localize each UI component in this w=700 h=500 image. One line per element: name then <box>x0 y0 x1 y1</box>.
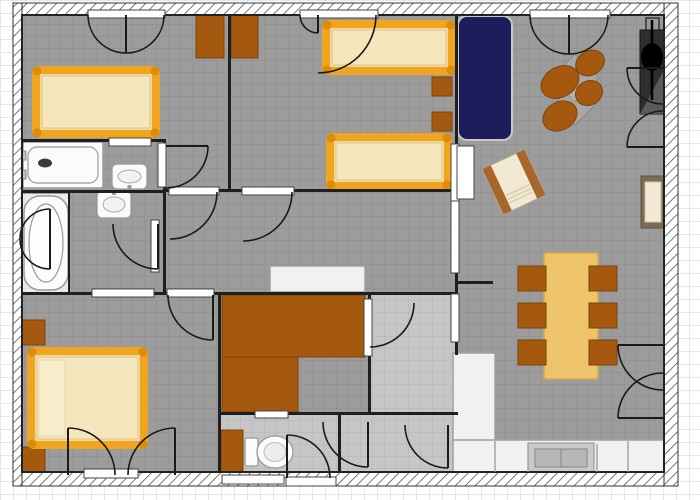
dining-chair-3 <box>518 340 546 365</box>
nightstand-4 <box>21 447 45 472</box>
wardrobe-bed1 <box>196 13 224 58</box>
threshold-bed3-hall <box>167 289 214 297</box>
wall-hall-bottom <box>22 292 458 295</box>
wall-wc-lobby <box>338 412 341 480</box>
bed-single-1-knob-3 <box>447 66 456 75</box>
bed-double-2-knob-2 <box>28 440 37 449</box>
wall-right <box>664 3 678 486</box>
bathtub-rect-drain <box>38 159 52 168</box>
bathtub-rect <box>23 142 103 188</box>
threshold-bath1-door <box>158 143 166 187</box>
wardrobe-bed2 <box>231 13 258 58</box>
bed-double-1-knob-3 <box>151 129 160 138</box>
threshold-bed2-hall <box>242 187 294 195</box>
sink-bath1-basin <box>118 170 141 183</box>
bed-single-1-knob-0 <box>323 21 332 30</box>
dining-chair-5 <box>589 303 617 328</box>
bed-double-1-knob-2 <box>33 129 42 138</box>
bed-single-1-mattress <box>332 30 446 65</box>
nightstand-1 <box>432 77 452 96</box>
bathtub-oval-basin <box>29 204 63 282</box>
hall-dresser <box>270 266 365 292</box>
wall-tub-niche <box>68 191 70 292</box>
threshold-utility-dining <box>451 294 459 342</box>
wall-bath1-bath2 <box>22 190 166 193</box>
bed-double-2-knob-1 <box>139 348 148 357</box>
kitchen-counter-tall <box>453 353 495 441</box>
dining-chair-1 <box>518 266 546 291</box>
window-bottom-1 <box>222 475 284 484</box>
wc-cabinet <box>221 430 243 478</box>
armchair-wall-cushion <box>645 182 661 222</box>
wall-bed3-wc <box>218 292 221 480</box>
closet-top <box>222 295 365 357</box>
bed-single-2-knob-1 <box>443 134 452 143</box>
sofa <box>458 16 512 140</box>
floorplan-svg <box>0 0 700 500</box>
bed-double-2-knob-0 <box>28 348 37 357</box>
toilet-seat <box>264 443 286 462</box>
bed-single-2-knob-2 <box>327 181 336 190</box>
jamb-living-upper <box>457 146 474 199</box>
wall-living-stub <box>455 281 493 284</box>
threshold-bed1-hall <box>169 187 219 195</box>
bed-double-1-knob-0 <box>33 67 42 76</box>
threshold-bed3-terrace <box>84 469 138 478</box>
floorplan-canvas <box>0 0 700 500</box>
bed-double-1-mattress <box>42 76 150 128</box>
shelf-wc <box>255 411 288 418</box>
threshold-bath2-bed3 <box>92 289 154 297</box>
wall-bed1-bed2 <box>228 15 231 191</box>
bed-double-1-knob-1 <box>151 67 160 76</box>
threshold-bed2-terrace <box>300 10 378 18</box>
closet-bottom <box>222 357 298 412</box>
nightstand-3 <box>21 320 45 345</box>
dining-chair-6 <box>589 340 617 365</box>
bed-double-2-pillow <box>39 360 65 436</box>
bed-single-1-knob-1 <box>447 21 456 30</box>
toilet-tank <box>245 438 258 466</box>
window-bottom-2 <box>286 477 336 486</box>
bed-single-2-mattress <box>336 143 442 180</box>
nightstand-2 <box>432 112 452 131</box>
dining-chair-4 <box>589 266 617 291</box>
threshold-hall-living <box>451 201 459 273</box>
sink-bath2-basin <box>103 197 125 212</box>
sink-bath1-tap <box>128 185 132 190</box>
bed-single-2-knob-3 <box>443 181 452 190</box>
bed-single-2-knob-0 <box>327 134 336 143</box>
dining-chair-2 <box>518 303 546 328</box>
towel-rail-bath1 <box>109 138 151 146</box>
